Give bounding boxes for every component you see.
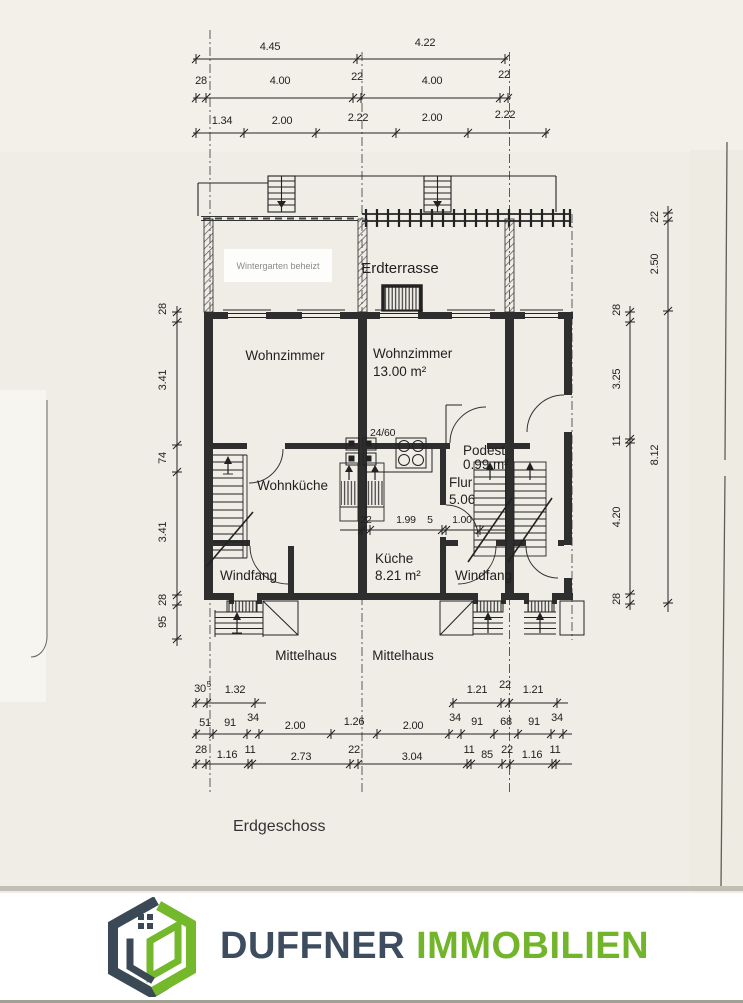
dim-label: 1.26 bbox=[344, 716, 365, 728]
dim-label: 11 bbox=[611, 435, 623, 446]
room-label-podest: Podest bbox=[463, 443, 505, 458]
dim-label: 91 bbox=[471, 716, 483, 728]
dim-label: 1.21 bbox=[467, 684, 488, 696]
room-label-wohnkueche: Wohnküche bbox=[257, 478, 328, 493]
dim-label: 4.00 bbox=[422, 75, 443, 87]
duffner-logo-icon bbox=[100, 897, 210, 997]
room-label-wohnzimmer-left: Wohnzimmer bbox=[245, 348, 325, 363]
brand-wordmark: DUFFNER IMMOBILIEN bbox=[220, 925, 649, 968]
dim-label: 34 bbox=[449, 712, 461, 724]
dim-label: 1.21 bbox=[523, 684, 544, 696]
dim-label: 22 bbox=[498, 69, 510, 81]
dim-label: 91 bbox=[528, 716, 540, 728]
room-label-windfang-right: Windfang bbox=[455, 568, 512, 583]
dim-label: 68 bbox=[500, 716, 512, 728]
dim-label: 1.34 bbox=[212, 115, 233, 127]
scan-edge-band bbox=[0, 886, 743, 891]
dim-label: 51 bbox=[199, 717, 211, 729]
brand-name-first: DUFFNER bbox=[220, 925, 405, 967]
dim-label: 28 bbox=[611, 304, 623, 316]
chimney bbox=[383, 286, 421, 312]
label-mittelhaus-left: Mittelhaus bbox=[275, 648, 337, 663]
dim-label: 22 bbox=[499, 679, 511, 691]
dim-label: 2.50 bbox=[649, 254, 661, 275]
dim-label: 4.22 bbox=[415, 37, 436, 49]
room-label-kueche: Küche bbox=[375, 551, 413, 566]
dim-label: 11 bbox=[463, 744, 474, 756]
logo-inner-d-green bbox=[150, 925, 178, 977]
dim-label: 1.00 bbox=[452, 514, 472, 526]
room-area-kueche: 8.21 m² bbox=[375, 568, 421, 583]
dim-label: 85 bbox=[481, 749, 493, 761]
dim-label: 2.73 bbox=[291, 751, 312, 763]
left-outer-wall bbox=[204, 319, 213, 600]
dim-label: 22 bbox=[649, 211, 661, 223]
room-label-windfang-left: Windfang bbox=[220, 568, 277, 583]
dim-label: 34 bbox=[247, 712, 259, 724]
dim-label: 91 bbox=[224, 717, 236, 729]
dim-label: 3.04 bbox=[402, 751, 423, 763]
door-size-note: 24/60 bbox=[370, 427, 396, 439]
dim-label: 2.22 bbox=[348, 112, 369, 124]
cut-wall-a bbox=[564, 319, 572, 395]
dim-label: 95 bbox=[157, 616, 169, 628]
dim-label: 2.00 bbox=[422, 112, 443, 124]
dim-label: 22 bbox=[501, 744, 513, 756]
dim-label: 1.16 bbox=[217, 749, 238, 761]
floorplan-drawing: 4.45 4.22 28 4.00 22 4.00 22 1.34 2.00 2… bbox=[0, 0, 743, 893]
dim-label: 34 bbox=[551, 712, 563, 724]
doormat-grate-left bbox=[227, 601, 257, 612]
room-area-wohnzimmer-mid: 13.00 m² bbox=[373, 364, 427, 379]
doormat-grate-right-b bbox=[528, 601, 554, 612]
dim-label: 8.12 bbox=[649, 445, 661, 466]
room-label-wohnzimmer-mid: Wohnzimmer bbox=[373, 346, 453, 361]
dim-label: 2.22 bbox=[495, 109, 516, 121]
dim-label: 74 bbox=[157, 452, 169, 464]
scanned-floorplan-page: { "plan": { "floor_label": "Erdgeschoss"… bbox=[0, 0, 743, 1000]
doormat-grate-right-a bbox=[477, 601, 503, 612]
dim-label: 2.00 bbox=[272, 115, 293, 127]
brand-name-second: IMMOBILIEN bbox=[416, 925, 649, 967]
dim-label: 4.00 bbox=[270, 75, 291, 87]
dim-label: 11 bbox=[244, 744, 255, 756]
dim-label: 22 bbox=[360, 514, 372, 526]
dim-label: 1.99 bbox=[396, 514, 416, 526]
dim-label: 3.41 bbox=[157, 522, 169, 543]
dim-label: 28 bbox=[157, 303, 169, 315]
dim-label: 4.20 bbox=[611, 507, 623, 528]
room-label-erdterrasse: Erdterrasse bbox=[361, 260, 439, 277]
room-label-flur: Flur bbox=[449, 475, 473, 490]
dim-label-sup: 5 bbox=[207, 680, 212, 689]
floor-title: Erdgeschoss bbox=[233, 818, 326, 835]
cut-wall-b bbox=[564, 432, 572, 545]
dim-label: 22 bbox=[348, 744, 360, 756]
dim-label: 28 bbox=[611, 593, 623, 605]
dim-label: 11 bbox=[549, 744, 560, 756]
dim-label: 28 bbox=[195, 75, 207, 87]
dim-label: 4.45 bbox=[260, 41, 281, 53]
logo-hexagon-dark bbox=[113, 903, 162, 993]
dim-label: 2.00 bbox=[403, 720, 424, 732]
dim-label: 30 bbox=[194, 683, 206, 695]
dim-label: 2.00 bbox=[285, 720, 306, 732]
room-label-wintergarten: Wintergarten beheizt bbox=[236, 261, 320, 271]
dim-label: 3.25 bbox=[611, 369, 623, 390]
brand-footer: DUFFNER IMMOBILIEN bbox=[0, 893, 743, 1003]
dim-label: 3.41 bbox=[157, 370, 169, 391]
logo-window bbox=[138, 914, 153, 929]
label-mittelhaus-right: Mittelhaus bbox=[372, 648, 434, 663]
dim-label: 28 bbox=[157, 594, 169, 606]
dim-label: 1.16 bbox=[522, 749, 543, 761]
room-area-podest: 0.99 m² bbox=[463, 457, 509, 472]
dim-label: 28 bbox=[195, 744, 207, 756]
dim-label: 22 bbox=[351, 71, 363, 83]
dim-label: 1.32 bbox=[225, 684, 246, 696]
room-area-flur: 5.06 bbox=[449, 492, 475, 507]
dim-label: 5 bbox=[427, 514, 433, 526]
